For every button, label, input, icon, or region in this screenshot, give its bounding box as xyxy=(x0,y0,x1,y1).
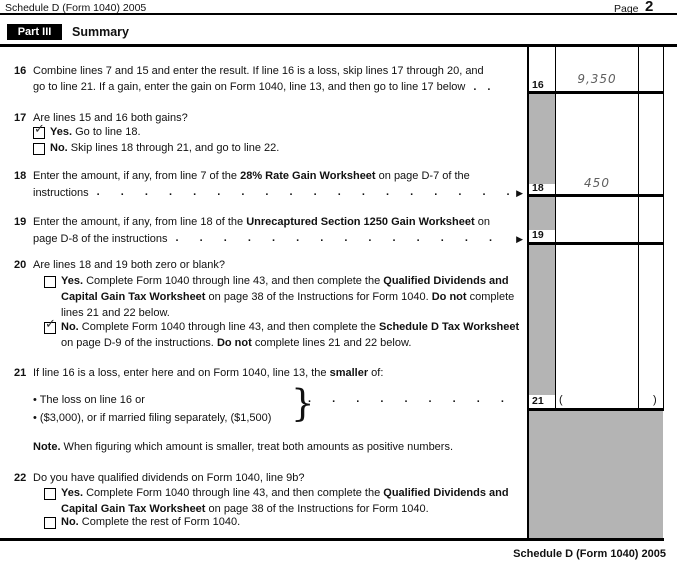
line16-text-2-body: go to line 21. If a gain, enter the gain… xyxy=(33,81,465,93)
checkbox-line22-yes[interactable] xyxy=(44,488,56,500)
line16-text-1: Combine lines 7 and 15 and enter the res… xyxy=(33,65,484,78)
shaded-cell xyxy=(529,92,555,184)
line20-yes-line3: lines 21 and 22 below. xyxy=(61,307,170,320)
line-number-21: 21 xyxy=(14,367,26,379)
line20-no-line2: on page D-9 of the instructions. Do not … xyxy=(61,337,411,350)
entry-line-16 xyxy=(527,91,664,94)
line18-text-2-body: instructions xyxy=(33,187,89,200)
entry-line-21 xyxy=(527,408,664,411)
amount-16[interactable]: 9,350 xyxy=(556,72,638,86)
line22-no-line: No. Complete the rest of Form 1040. xyxy=(61,516,240,529)
line17-no-label: No. Skip lines 18 through 21, and go to … xyxy=(50,142,279,155)
line19-text-1: Enter the amount, if any, from line 18 o… xyxy=(33,216,490,229)
line-number-22: 22 xyxy=(14,472,26,484)
schedule-d-page: Schedule D (Form 1040) 2005 Page 2 Part … xyxy=(0,0,677,564)
shaded-cell xyxy=(529,197,555,230)
footer-form-title: Schedule D (Form 1040) 2005 xyxy=(0,548,666,561)
line20-yes-line2: Capital Gain Tax Worksheet on page 38 of… xyxy=(61,291,514,304)
checkbox-line17-yes[interactable]: ✓ xyxy=(33,127,45,139)
line-number-18: 18 xyxy=(14,170,26,182)
box-number-21: 21 xyxy=(532,395,544,407)
checkbox-line20-yes[interactable] xyxy=(44,276,56,288)
arrow-right-icon: ▶ xyxy=(516,233,523,246)
box-number-19: 19 xyxy=(532,229,544,241)
table-line-cents xyxy=(638,45,639,410)
line-number-20: 20 xyxy=(14,259,26,271)
line17-question: Are lines 15 and 16 both gains? xyxy=(33,112,188,125)
line19-text-2-body: page D-8 of the instructions xyxy=(33,233,168,246)
line-number-17: 17 xyxy=(14,112,26,124)
line18-text-2: instructions . . . . . . . . . . . . . .… xyxy=(33,186,523,200)
shaded-cell xyxy=(529,245,555,395)
part-iii-badge: Part III xyxy=(7,24,62,40)
dot-leader-short: .. xyxy=(473,81,501,93)
line21-question: If line 16 is a loss, enter here and on … xyxy=(33,367,383,380)
line22-question: Do you have qualified dividends on Form … xyxy=(33,472,305,485)
header-rule xyxy=(0,13,677,15)
arrow-right-icon: ▶ xyxy=(516,187,523,200)
line21-leader: . . . . . . . . . . . . . . . . . . . . … xyxy=(308,393,520,407)
line16-text-2: go to line 21. If a gain, enter the gain… xyxy=(33,81,501,94)
shaded-block xyxy=(529,411,663,538)
box-number-18: 18 xyxy=(532,182,544,194)
line21-bullet-1: • The loss on line 16 or xyxy=(33,394,145,407)
line21-bullet-2: • ($3,000), or if married filing separat… xyxy=(33,412,271,425)
table-line-right xyxy=(663,45,664,410)
table-line-left xyxy=(527,45,529,538)
check-icon: ✓ xyxy=(45,316,56,332)
dot-leader: . . . . . . . . . . . . . . . . . . . . … xyxy=(176,232,513,245)
line-number-16: 16 xyxy=(14,65,26,77)
line18-text-1: Enter the amount, if any, from line 7 of… xyxy=(33,170,470,183)
line-number-19: 19 xyxy=(14,216,26,228)
amount-21-open-paren[interactable]: ( xyxy=(559,394,563,407)
checkbox-line17-no[interactable] xyxy=(33,143,45,155)
check-icon: ✓ xyxy=(34,121,45,137)
box-number-16: 16 xyxy=(532,79,544,91)
part-title: Summary xyxy=(72,26,129,39)
checkbox-line20-no[interactable]: ✓ xyxy=(44,322,56,334)
dot-leader: . . . . . . . . . . . . . . . . . . . . … xyxy=(97,186,512,199)
dot-leader: . . . . . . . . . . . . . . . . . . . . … xyxy=(308,393,516,406)
entry-line-18 xyxy=(527,194,664,197)
line21-note: Note. When figuring which amount is smal… xyxy=(33,441,453,454)
entry-line-19 xyxy=(527,242,664,245)
table-line-mid xyxy=(555,45,556,410)
checkbox-line22-no[interactable] xyxy=(44,517,56,529)
line20-no-line1: No. Complete Form 1040 through line 43, … xyxy=(61,321,519,334)
line19-text-2: page D-8 of the instructions . . . . . .… xyxy=(33,232,523,246)
line22-yes-line1: Yes. Complete Form 1040 through line 43,… xyxy=(61,487,509,500)
page-number: 2 xyxy=(645,0,653,13)
part-rule xyxy=(0,44,677,47)
line20-yes-line1: Yes. Complete Form 1040 through line 43,… xyxy=(61,275,509,288)
footer-rule xyxy=(0,538,664,541)
amount-18[interactable]: 450 xyxy=(556,176,638,190)
line17-yes-label: Yes. Go to line 18. xyxy=(50,126,141,139)
amount-21-close-paren: ) xyxy=(653,394,657,407)
line20-question: Are lines 18 and 19 both zero or blank? xyxy=(33,259,225,272)
line22-yes-line2: Capital Gain Tax Worksheet on page 38 of… xyxy=(61,503,429,516)
